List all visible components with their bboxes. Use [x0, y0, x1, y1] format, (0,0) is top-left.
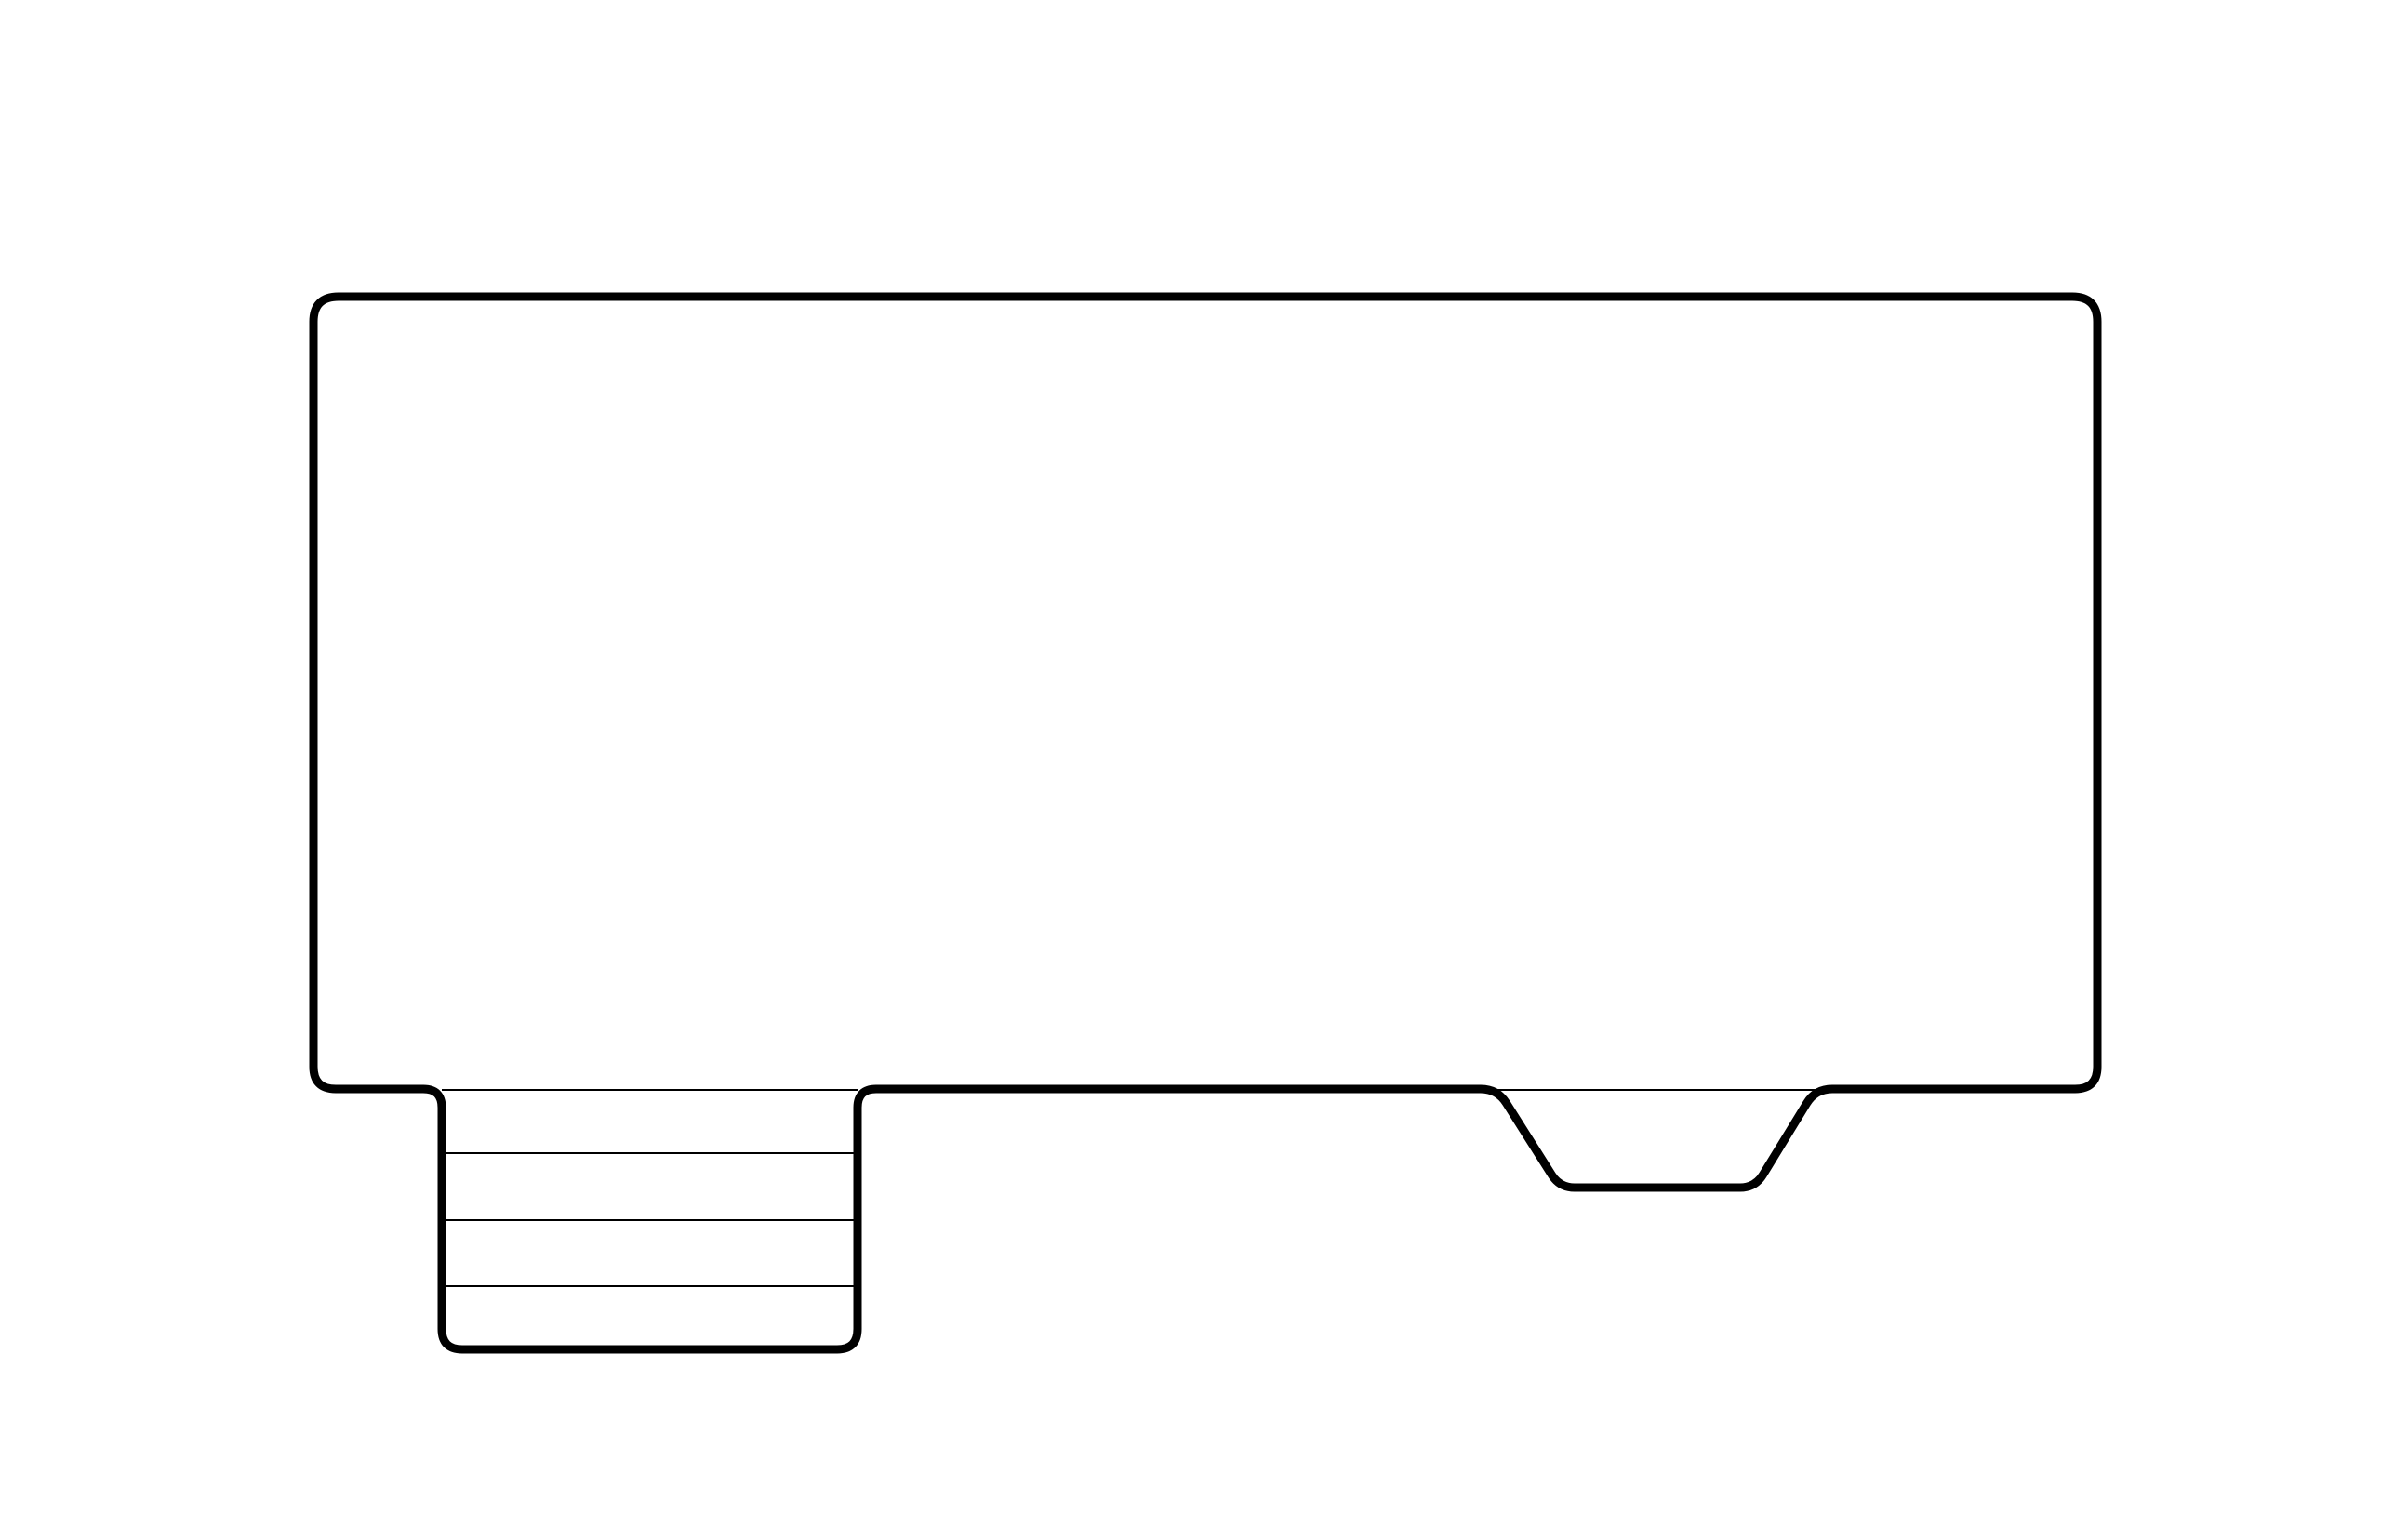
- step-tread-lines: [442, 1090, 858, 1286]
- pool-plan-drawing: [0, 0, 2381, 1540]
- drawing-canvas: [0, 0, 2381, 1540]
- pool-outline-path: [313, 297, 2097, 1349]
